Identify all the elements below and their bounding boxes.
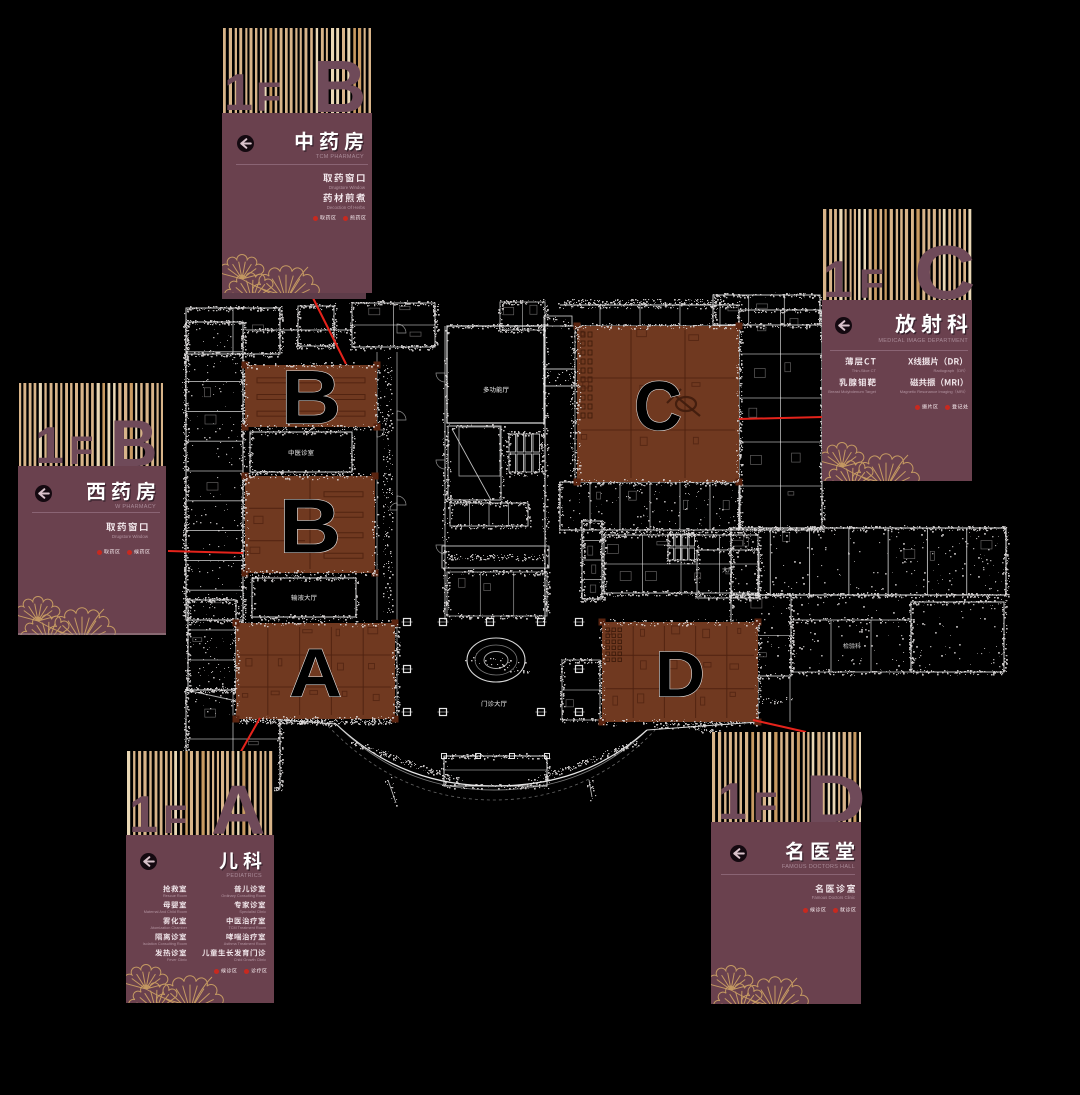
svg-text:B: B	[281, 356, 341, 441]
svg-text:D: D	[655, 638, 705, 711]
svg-text:A: A	[289, 635, 342, 712]
svg-text:B: B	[279, 484, 341, 570]
svg-text:C: C	[634, 367, 682, 445]
